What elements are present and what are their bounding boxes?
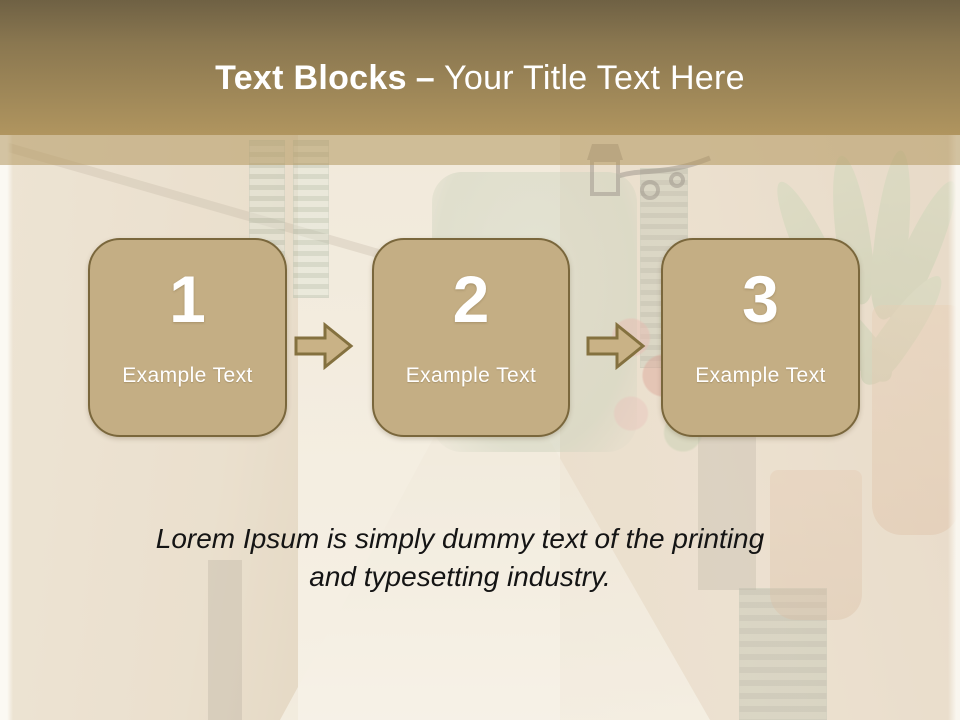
title-dash: – [416,59,435,97]
body-paragraph[interactable]: Lorem Ipsum is simply dummy text of the … [0,520,920,596]
paragraph-line-2: and typesetting industry. [0,558,920,596]
slide: Text Blocks–Your Title Text Here 1 Examp… [0,0,960,720]
step-number: 3 [663,266,858,332]
photo-edge-right [948,135,960,720]
right-arrow-icon[interactable] [586,322,646,370]
header-band: Text Blocks–Your Title Text Here [0,0,960,135]
paragraph-line-1: Lorem Ipsum is simply dummy text of the … [0,520,920,558]
step-label: Example Text [663,364,858,388]
step-label: Example Text [90,364,285,388]
step-box-2[interactable]: 2 Example Text [372,238,570,437]
title-bold-text: Text Blocks [215,59,407,97]
slide-title[interactable]: Text Blocks–Your Title Text Here [215,59,745,98]
photo-edge-left [0,135,13,720]
step-label: Example Text [374,364,568,388]
step-box-3[interactable]: 3 Example Text [661,238,860,437]
step-number: 2 [374,266,568,332]
step-number: 1 [90,266,285,332]
title-regular-text: Your Title Text Here [444,59,745,97]
right-arrow-icon[interactable] [294,322,354,370]
step-box-1[interactable]: 1 Example Text [88,238,287,437]
header-fade-strip [0,135,960,165]
